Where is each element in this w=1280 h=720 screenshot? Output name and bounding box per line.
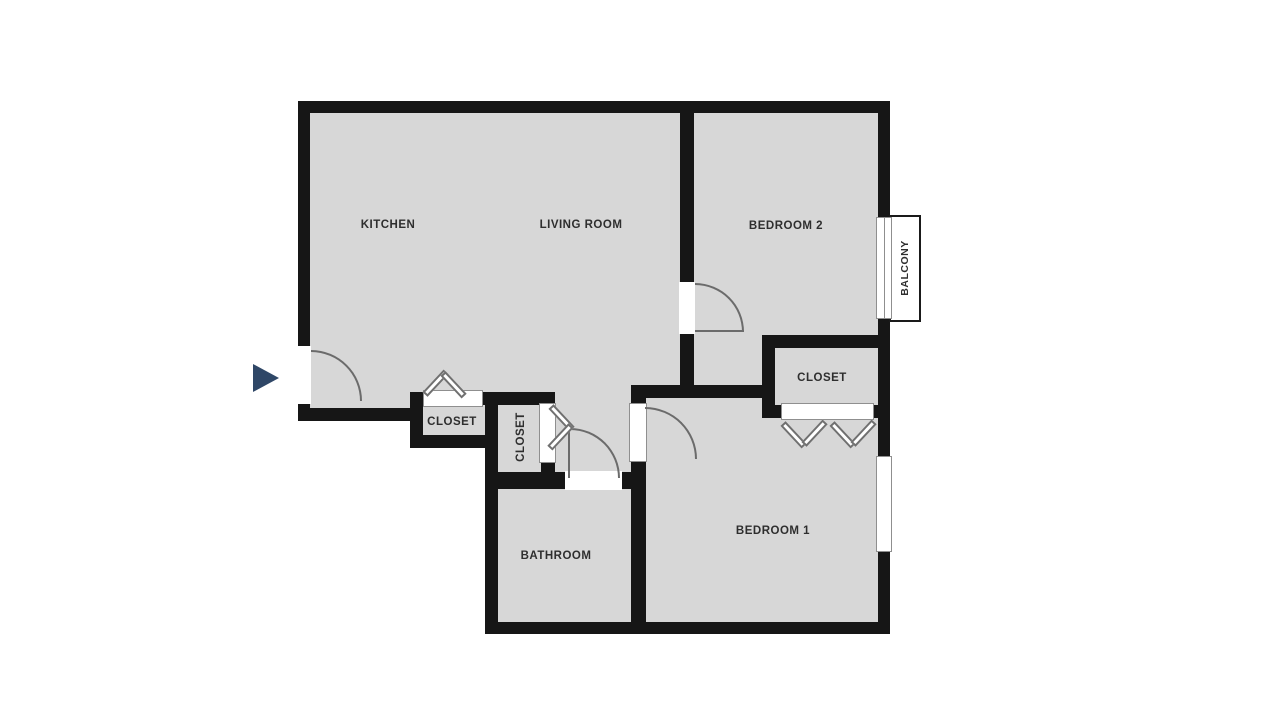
entry-arrow-icon	[253, 364, 279, 392]
bedroom-2-door-leaf	[695, 330, 744, 332]
wall-bedroom-closet-bottom-left	[762, 405, 782, 418]
wall-bathroom-top-left	[485, 472, 566, 489]
wall-bottom	[485, 622, 890, 634]
bedroom-2-door-opening	[679, 282, 695, 334]
entry-door-opening	[296, 346, 311, 404]
room-label-hall-closet-1: CLOSET	[427, 416, 477, 428]
room-label-balcony: BALCONY	[899, 240, 911, 295]
wall-bedroom-closet-top	[762, 335, 890, 348]
balcony-sliding-door	[876, 217, 892, 319]
wall-bedroom1-left-lower	[631, 461, 646, 634]
room-label-bedroom-closet: CLOSET	[797, 372, 847, 384]
room-label-kitchen: KITCHEN	[361, 219, 416, 231]
wall-bedroom2-left-lower	[680, 334, 694, 398]
room-label-bedroom-1: BEDROOM 1	[736, 525, 810, 537]
wall-top	[298, 101, 890, 113]
wall-kitchen-bottom	[298, 408, 413, 421]
bedroom-1-window	[876, 456, 892, 552]
bathroom-door-leaf	[568, 429, 570, 478]
room-label-living-room: LIVING ROOM	[540, 219, 623, 231]
wall-mid-vertical	[485, 392, 498, 634]
room-label-bedroom-2: BEDROOM 2	[749, 220, 823, 232]
room-label-hall-closet-2: CLOSET	[515, 412, 527, 462]
floor-plan: KITCHEN LIVING ROOM BEDROOM 2 CLOSET CLO…	[0, 0, 1280, 720]
wall-right-upper	[878, 101, 890, 218]
bedroom-closet-opening	[781, 403, 874, 420]
hall-closet-1-opening	[423, 390, 483, 407]
wall-left-upper	[298, 101, 310, 346]
wall-bedroom2-left-upper	[680, 113, 694, 282]
wall-bedroom1-top	[631, 385, 770, 398]
balcony-sliding-door-track	[884, 218, 885, 318]
wall-right-middle	[878, 318, 890, 457]
wall-bedroom1-left-upper	[631, 385, 646, 404]
room-label-bathroom: BATHROOM	[521, 550, 592, 562]
